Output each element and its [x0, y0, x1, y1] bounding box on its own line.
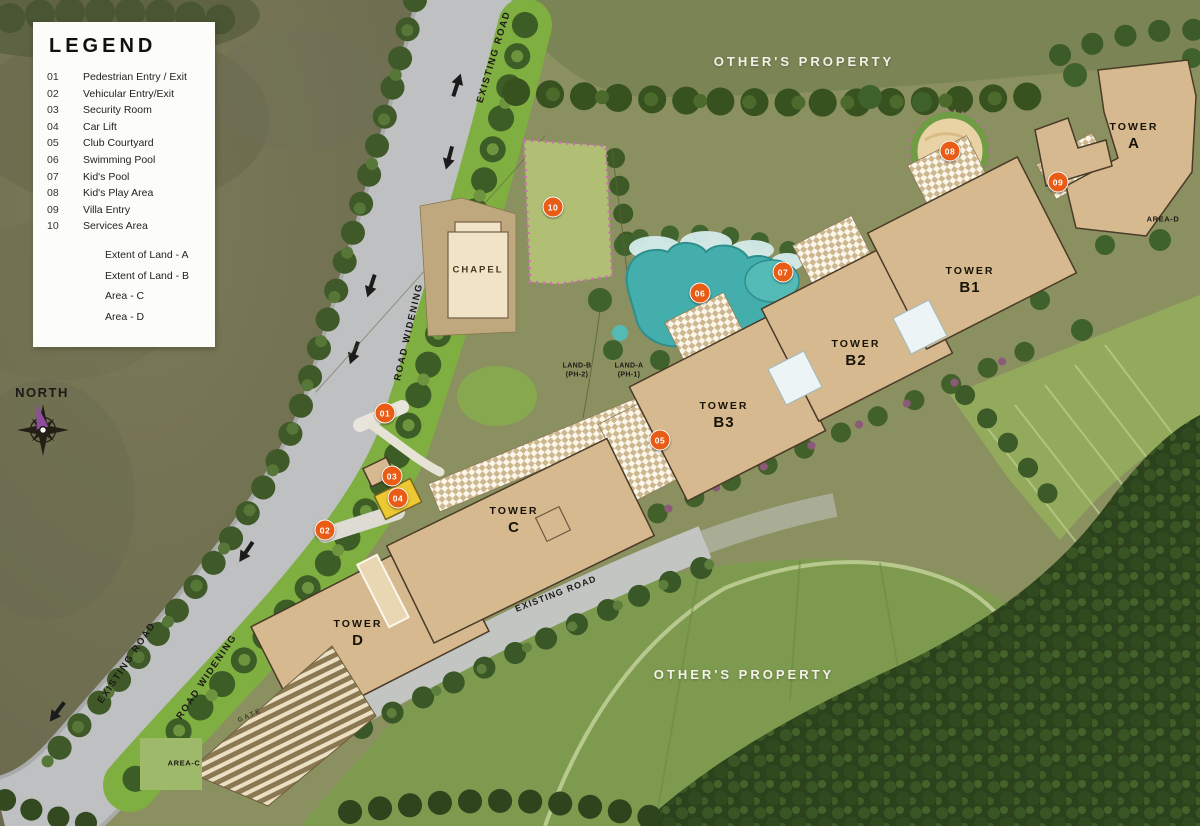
- legend-item-02: 02Vehicular Entry/Exit: [47, 88, 203, 100]
- legend-item-08: 08Kid's Play Area: [47, 187, 203, 199]
- legend-item-06: 06Swimming Pool: [47, 154, 203, 166]
- map-marker-03: 03: [382, 466, 403, 487]
- legend-extent: Extent of Land - A: [105, 249, 203, 261]
- map-marker-08: 08: [940, 141, 961, 162]
- legend-item-07: 07Kid's Pool: [47, 171, 203, 183]
- legend-title: LEGEND: [49, 35, 203, 58]
- legend-item-10: 10Services Area: [47, 220, 203, 232]
- chapel-building: [448, 232, 508, 318]
- legend-extent: Extent of Land - B: [105, 270, 203, 282]
- map-marker-02: 02: [315, 520, 336, 541]
- legend-items: 01Pedestrian Entry / Exit02Vehicular Ent…: [47, 71, 203, 232]
- garden-lawn: [457, 366, 537, 426]
- map-marker-07: 07: [773, 262, 794, 283]
- compass-rose: [12, 399, 74, 461]
- services-area: [524, 140, 612, 284]
- legend-item-01: 01Pedestrian Entry / Exit: [47, 71, 203, 83]
- map-marker-01: 01: [375, 403, 396, 424]
- legend-extents: Extent of Land - AExtent of Land - BArea…: [105, 249, 203, 323]
- map-marker-10: 10: [543, 197, 564, 218]
- legend-item-05: 05Club Courtyard: [47, 137, 203, 149]
- area-c-lawn: [140, 738, 202, 790]
- map-marker-04: 04: [388, 488, 409, 509]
- legend-panel: LEGEND 01Pedestrian Entry / Exit02Vehicu…: [33, 22, 215, 347]
- legend-extent: Area - D: [105, 311, 203, 323]
- site-master-plan: EXISTING ROADOTHER'S PROPERTYTOWERAAREA-…: [0, 0, 1200, 826]
- legend-item-03: 03Security Room: [47, 104, 203, 116]
- map-marker-06: 06: [690, 283, 711, 304]
- legend-item-04: 04Car Lift: [47, 121, 203, 133]
- map-marker-05: 05: [650, 430, 671, 451]
- legend-extent: Area - C: [105, 290, 203, 302]
- legend-item-09: 09Villa Entry: [47, 204, 203, 216]
- north-needle: [31, 402, 49, 429]
- water-feature: [612, 325, 628, 341]
- map-marker-09: 09: [1048, 172, 1069, 193]
